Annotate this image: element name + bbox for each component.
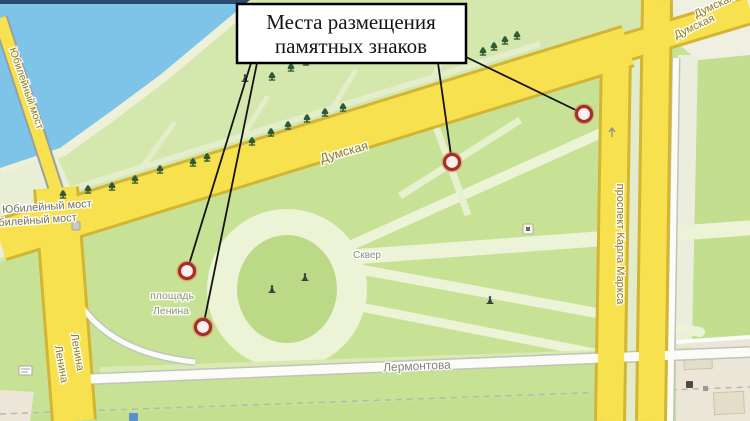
map-canvas[interactable]: Думская Думская Думская проспект Карла М…	[0, 0, 750, 421]
title-line-1: Места размещения	[266, 10, 436, 34]
memorial-marker	[443, 153, 462, 172]
map-screenshot: Думская Думская Думская проспект Карла М…	[0, 0, 750, 421]
memorial-marker	[575, 105, 594, 124]
label-ploshchad-lenina-1: площадь	[150, 290, 194, 302]
plaza-lawn	[237, 235, 337, 343]
small-poi-icon	[703, 386, 708, 391]
marker-circle	[196, 320, 211, 335]
bottom-left-block	[0, 390, 34, 421]
marker-circle	[577, 107, 592, 122]
title-box: Места размещения памятных знаков	[237, 4, 466, 63]
marker-circle	[180, 264, 195, 279]
label-ploshchad-lenina-2: Ленина	[153, 305, 189, 317]
label-skver: Сквер	[353, 250, 381, 261]
park-building-icon	[523, 224, 533, 234]
memorial-marker	[194, 318, 213, 337]
marker-circle	[445, 155, 460, 170]
title-line-2: памятных знаков	[275, 34, 427, 58]
far-bank-edge	[0, 0, 250, 4]
street-label-lermontova: Лермонтова	[383, 358, 452, 375]
road-sign-icon	[19, 366, 32, 375]
transit-stop-icon	[129, 413, 138, 421]
building-poi-icon	[686, 381, 693, 388]
memorial-marker	[178, 262, 197, 281]
street-label-karla-marksa: проспект Карла Маркса	[614, 184, 626, 306]
karl-marx-east-road	[651, 0, 657, 421]
right-green-area	[692, 55, 750, 345]
